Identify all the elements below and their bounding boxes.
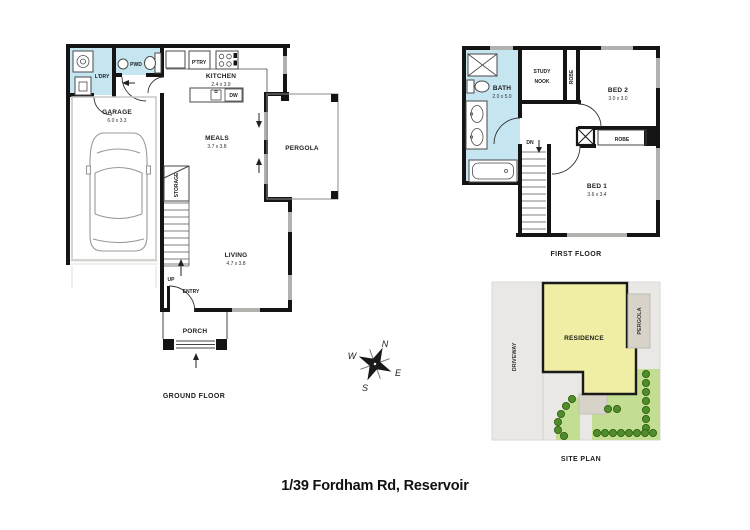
garage-label: GARAGE (102, 109, 132, 116)
study-nook-line2: NOOK (535, 79, 550, 85)
porch-label: PORCH (183, 328, 208, 335)
pergola-label: PERGOLA (285, 145, 319, 152)
site-plan-title: SITE PLAN (561, 456, 601, 463)
staircase-ground (164, 201, 189, 266)
site-plan: DRIVEWAY RESIDENCE PERGOLA SITE PLAN (492, 282, 660, 463)
bed2-label: BED 2 (608, 87, 628, 94)
storage-label: STORAGE (174, 172, 180, 197)
dishwasher-label: DW (229, 93, 238, 99)
site-porch-pad (579, 394, 607, 414)
washer-icon (73, 51, 93, 72)
compass-north: N (382, 339, 389, 349)
first-floor-plan: BATH 2.0 x 5.0 STUDY NOOK ROBE BED 2 3.0… (462, 46, 660, 258)
toilet-icon-first (467, 80, 489, 93)
floorplan-page: L'DRY PWD P'TRY KITCHEN 2.4 x 3.9 DW GAR… (0, 0, 750, 530)
study-nook-line1: STUDY (534, 69, 552, 75)
kitchen-dims: 2.4 x 3.9 (211, 82, 230, 88)
up-arrow (178, 259, 184, 276)
car-icon (87, 133, 151, 251)
fridge-icon (166, 51, 185, 68)
basin-icon (118, 59, 128, 69)
driveway-label: DRIVEWAY (512, 342, 518, 371)
compass-rose: N E S W (348, 339, 402, 393)
entry-arrow (193, 353, 199, 368)
shower-icon (468, 54, 497, 76)
residence-label: RESIDENCE (564, 335, 604, 342)
ground-floor-title: GROUND FLOOR (163, 393, 225, 400)
sliding-door-arrows (256, 113, 262, 173)
down-label: DN (526, 140, 534, 146)
laundry-label: L'DRY (95, 74, 110, 80)
meals-label: MEALS (205, 135, 229, 142)
bed1-label: BED 1 (587, 183, 607, 190)
robe-bed1-label: ROBE (615, 137, 630, 143)
compass-west: W (348, 351, 358, 361)
site-pergola-label: PERGOLA (637, 307, 643, 334)
ground-floor-plan: L'DRY PWD P'TRY KITCHEN 2.4 x 3.9 DW GAR… (66, 44, 338, 400)
powder-label: PWD (130, 62, 142, 68)
living-dims: 4.7 x 3.8 (226, 261, 245, 267)
staircase-first (522, 152, 546, 229)
compass-east: E (395, 368, 402, 378)
bed1-dims: 3.6 x 3.4 (587, 192, 606, 198)
address-title: 1/39 Fordham Rd, Reservoir (0, 478, 750, 494)
floorplan-canvas: L'DRY PWD P'TRY KITCHEN 2.4 x 3.9 DW GAR… (0, 0, 750, 530)
vanity-icon (466, 101, 487, 149)
bath-dims: 2.0 x 5.0 (492, 94, 511, 100)
kitchen-label: KITCHEN (206, 73, 236, 80)
compass-south: S (362, 383, 368, 393)
up-label: UP (168, 277, 176, 283)
trough-icon (75, 77, 91, 95)
powder-door-arrow (122, 80, 135, 86)
entry-label: ENTRY (183, 289, 200, 295)
robe-post (577, 128, 594, 145)
garage-dims: 6.0 x 3.3 (107, 118, 126, 124)
cooktop-icon (216, 51, 238, 69)
living-label: LIVING (225, 252, 248, 259)
bed2-dims: 3.0 x 3.0 (608, 96, 627, 102)
bathtub-icon (469, 160, 517, 182)
robe-bed2-label: ROBE (569, 69, 575, 84)
bath-label: BATH (493, 85, 511, 92)
first-floor-title: FIRST FLOOR (550, 251, 601, 258)
pantry-label: P'TRY (192, 60, 207, 66)
meals-dims: 3.7 x 3.8 (207, 144, 226, 150)
down-arrow (536, 140, 542, 153)
